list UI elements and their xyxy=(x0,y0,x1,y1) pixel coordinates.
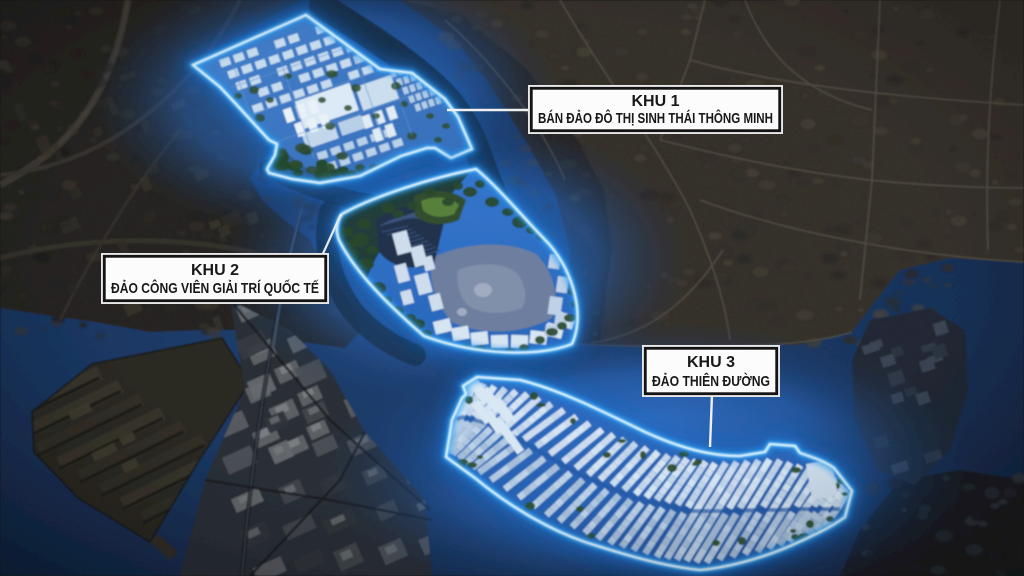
svg-text:ĐẢO THIÊN ĐƯỜNG: ĐẢO THIÊN ĐƯỜNG xyxy=(652,372,770,390)
svg-text:KHU 1: KHU 1 xyxy=(632,93,680,110)
svg-text:KHU 3: KHU 3 xyxy=(687,354,735,371)
svg-text:ĐẢO CÔNG VIÊN GIẢI TRÍ QUỐC TẾ: ĐẢO CÔNG VIÊN GIẢI TRÍ QUỐC TẾ xyxy=(111,279,319,297)
svg-text:BÁN ĐẢO ĐÔ THỊ SINH THÁI THÔNG: BÁN ĐẢO ĐÔ THỊ SINH THÁI THÔNG MINH xyxy=(538,109,773,127)
svg-text:KHU 2: KHU 2 xyxy=(191,262,239,279)
